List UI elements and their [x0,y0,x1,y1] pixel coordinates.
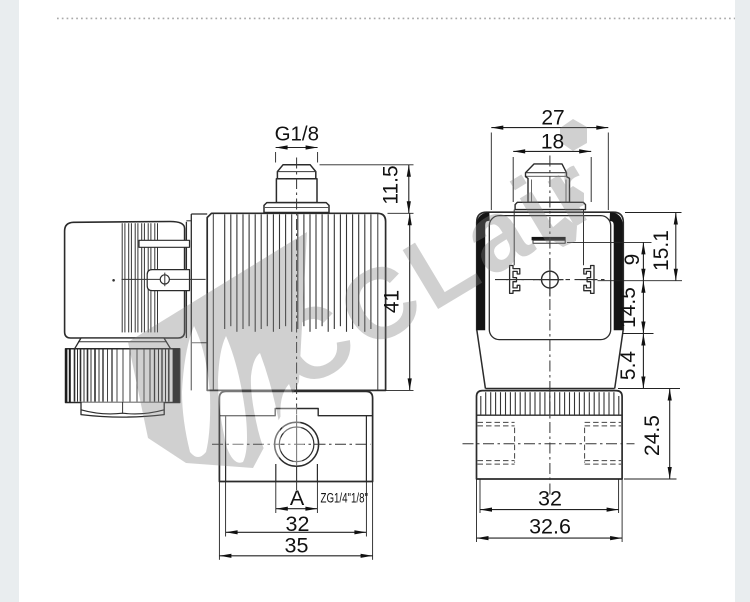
svg-text:18: 18 [541,131,564,154]
svg-text:32.6: 32.6 [529,515,571,539]
svg-text:9: 9 [621,254,644,266]
svg-text:11.5: 11.5 [380,165,403,204]
svg-text:27: 27 [541,107,564,130]
svg-text:5.4: 5.4 [617,351,640,381]
svg-text:A: A [290,486,305,510]
svg-text:32: 32 [538,487,562,511]
svg-text:24.5: 24.5 [641,415,664,456]
svg-text:32: 32 [286,512,310,536]
svg-text:41: 41 [381,290,404,313]
svg-text:14.5: 14.5 [617,287,640,328]
svg-text:G1/8: G1/8 [275,123,319,146]
svg-text:15.1: 15.1 [650,230,673,271]
svg-text:ZG1/4"1/8": ZG1/4"1/8" [321,491,369,506]
svg-text:35: 35 [285,534,309,558]
